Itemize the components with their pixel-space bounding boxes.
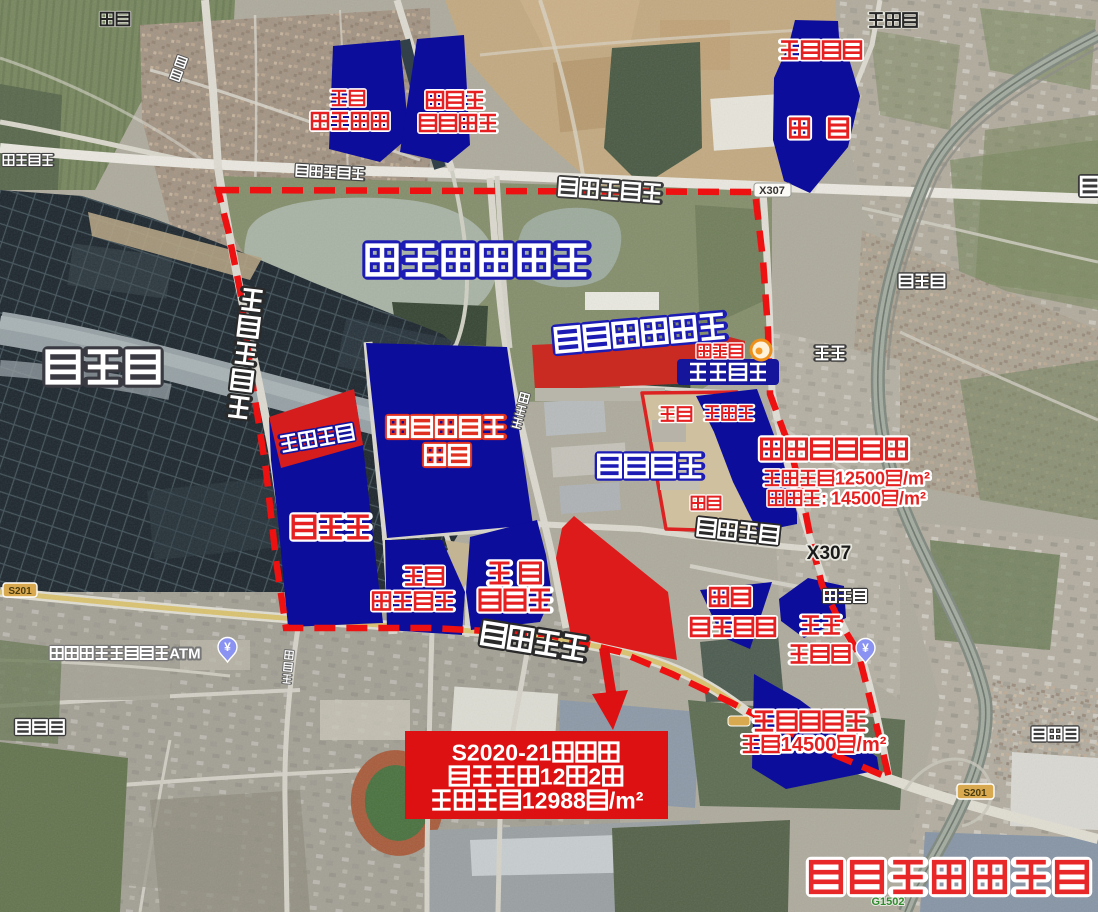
svg-text:/m²: /m² <box>856 734 886 756</box>
svg-text:¥: ¥ <box>224 640 231 654</box>
svg-text:/m²: /m² <box>899 489 926 509</box>
svg-text:/m²: /m² <box>903 469 930 489</box>
svg-text:G1502: G1502 <box>872 896 905 908</box>
svg-text:2: 2 <box>588 763 601 789</box>
svg-text:ATM: ATM <box>169 645 200 662</box>
svg-text:S201: S201 <box>8 586 32 597</box>
svg-text:12500: 12500 <box>835 469 885 489</box>
svg-text:¥: ¥ <box>862 641 869 655</box>
svg-text:14500: 14500 <box>831 489 881 509</box>
svg-text:X307: X307 <box>807 543 851 564</box>
svg-text:/m²: /m² <box>609 787 644 813</box>
svg-text:14500: 14500 <box>781 734 837 756</box>
svg-text:12: 12 <box>540 763 566 789</box>
svg-text::: : <box>821 489 827 509</box>
svg-text:S2020-21: S2020-21 <box>452 739 552 765</box>
svg-text:12988: 12988 <box>522 787 586 813</box>
svg-text:X307: X307 <box>759 185 785 197</box>
svg-text:S201: S201 <box>963 788 987 799</box>
